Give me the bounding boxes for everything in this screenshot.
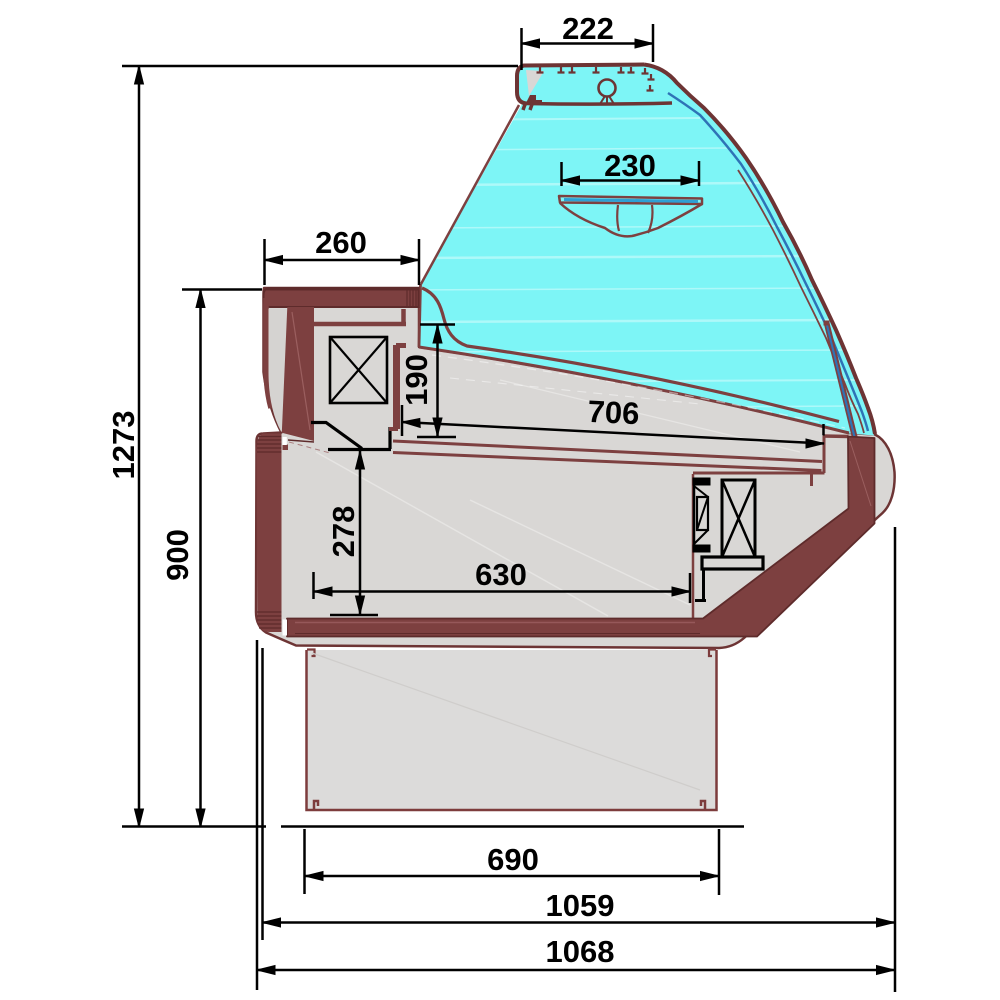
svg-text:1273: 1273 <box>106 411 141 480</box>
svg-text:900: 900 <box>160 529 195 581</box>
svg-text:278: 278 <box>326 506 361 558</box>
svg-text:260: 260 <box>315 225 367 260</box>
svg-text:1059: 1059 <box>546 888 615 923</box>
svg-text:190: 190 <box>399 354 434 406</box>
svg-text:230: 230 <box>604 148 656 183</box>
svg-text:222: 222 <box>562 11 614 46</box>
svg-text:1068: 1068 <box>546 934 615 969</box>
svg-text:630: 630 <box>475 557 527 592</box>
svg-text:706: 706 <box>587 394 640 432</box>
svg-text:690: 690 <box>487 842 539 877</box>
